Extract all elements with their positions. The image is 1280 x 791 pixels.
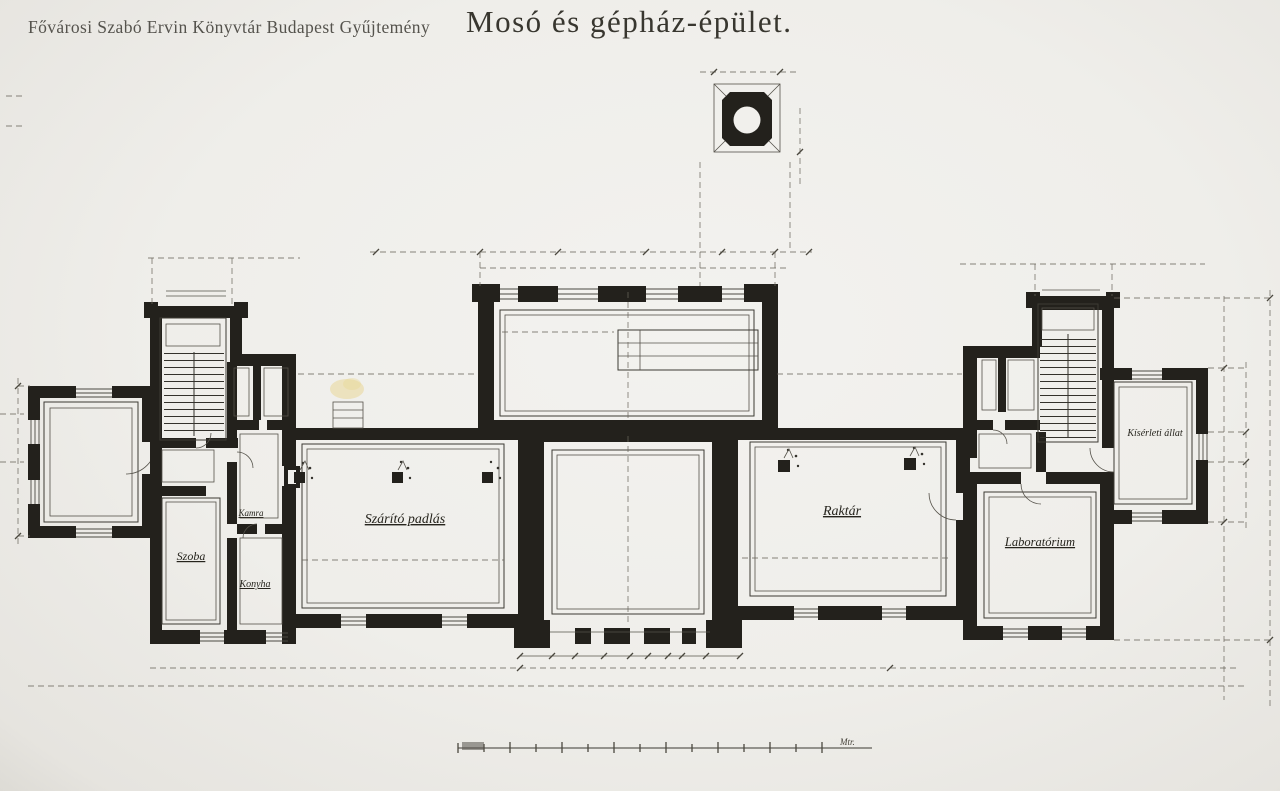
door-arc: [1021, 484, 1041, 504]
room-label-kamra: Kamra: [237, 508, 264, 518]
door-arc: [993, 430, 1007, 444]
scale-bar-left-mark: [462, 742, 484, 750]
hall-szarito-columns: [294, 461, 501, 483]
room-label-kiserleti-allat: Kísérleti állat: [1126, 428, 1183, 439]
scale-unit-label: Mtr.: [839, 737, 855, 747]
room-label-szoba: Szoba: [177, 549, 206, 563]
room-label-szarito: Szárító padlás: [365, 512, 446, 527]
scanned-floorplan-photo: Fővárosi Szabó Ervin Könyvtár Budapest G…: [0, 0, 1280, 791]
staircase-left: [160, 318, 226, 440]
hall-raktar: [738, 428, 970, 620]
room-label-laboratorium: Laboratórium: [1004, 535, 1075, 549]
wing-right-walls: [963, 290, 1120, 640]
scale-bar: Mtr.: [458, 737, 872, 753]
annex-left-walls: [28, 386, 156, 538]
door-arc: [1090, 448, 1114, 472]
door-arc: [929, 493, 956, 520]
annex-left-windows: [31, 389, 112, 537]
room-top-center: [472, 284, 778, 434]
annex-right-windows: [1132, 371, 1207, 521]
room-label-raktar: Raktár: [822, 504, 862, 519]
paper-stain: [330, 378, 364, 399]
floorplan-svg: Szoba Kamra Konyha Szárító padlás Raktár…: [0, 0, 1280, 791]
door-arc: [237, 452, 253, 468]
hall-central: [514, 428, 742, 648]
chimney-detail: [700, 69, 803, 188]
hall-raktar-columns: [778, 447, 925, 472]
staircase-right: [1038, 304, 1098, 442]
room-label-konyha: Konyha: [238, 579, 270, 590]
machinery-foundation: [618, 330, 758, 370]
room-labels: Szoba Kamra Konyha Szárító padlás Raktár…: [177, 428, 1183, 590]
wing-left-walls: [144, 291, 300, 644]
